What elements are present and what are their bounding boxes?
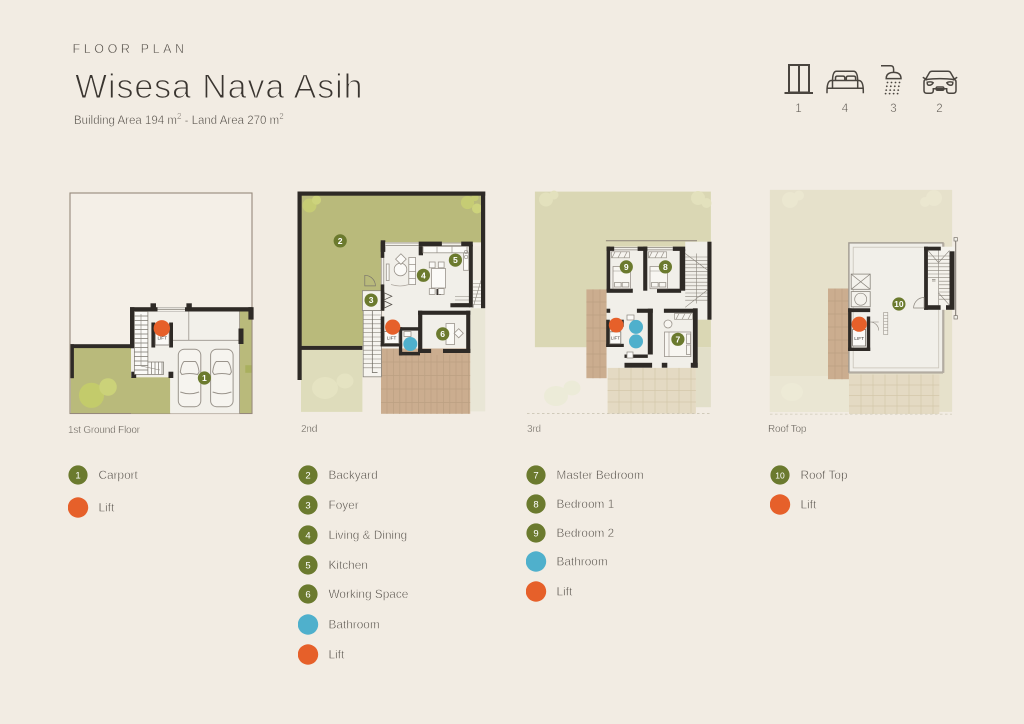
svg-text:5: 5 bbox=[453, 255, 458, 265]
svg-text:Bathroom: Bathroom bbox=[328, 617, 379, 631]
svg-text:Bedroom 2: Bedroom 2 bbox=[556, 526, 614, 540]
svg-text:4: 4 bbox=[842, 103, 849, 115]
svg-text:3: 3 bbox=[305, 500, 310, 511]
svg-text:4: 4 bbox=[305, 530, 310, 541]
svg-text:Kitchen: Kitchen bbox=[328, 558, 367, 572]
svg-text:4: 4 bbox=[421, 270, 426, 280]
svg-text:Living & Dining: Living & Dining bbox=[328, 528, 407, 542]
svg-text:LIFT: LIFT bbox=[611, 336, 620, 341]
svg-text:10: 10 bbox=[775, 470, 785, 480]
svg-text:6: 6 bbox=[440, 329, 445, 339]
svg-text:Foyer: Foyer bbox=[328, 498, 358, 512]
svg-text:Roof Top: Roof Top bbox=[800, 468, 847, 482]
svg-text:2: 2 bbox=[338, 236, 343, 246]
svg-text:LIFT: LIFT bbox=[387, 335, 397, 340]
svg-text:2: 2 bbox=[936, 103, 942, 115]
svg-text:5: 5 bbox=[305, 560, 310, 571]
svg-text:9: 9 bbox=[624, 262, 629, 272]
svg-text:9: 9 bbox=[533, 528, 538, 539]
svg-text:Bedroom 1: Bedroom 1 bbox=[556, 497, 614, 511]
svg-text:1: 1 bbox=[202, 373, 207, 383]
svg-text:Backyard: Backyard bbox=[328, 468, 377, 482]
svg-text:7: 7 bbox=[533, 470, 538, 481]
svg-text:8: 8 bbox=[533, 499, 538, 510]
svg-text:LIFT: LIFT bbox=[854, 336, 864, 342]
svg-text:3: 3 bbox=[369, 295, 374, 305]
svg-text:10: 10 bbox=[894, 299, 904, 309]
svg-text:Working Space: Working Space bbox=[328, 588, 408, 602]
svg-text:Lift: Lift bbox=[99, 500, 115, 514]
svg-text:Carport: Carport bbox=[99, 468, 139, 482]
svg-text:2: 2 bbox=[305, 470, 310, 481]
svg-text:7: 7 bbox=[676, 334, 681, 344]
svg-text:8: 8 bbox=[663, 262, 668, 272]
svg-text:Bathroom: Bathroom bbox=[556, 555, 607, 569]
svg-text:3: 3 bbox=[890, 103, 896, 115]
svg-text:1: 1 bbox=[75, 470, 80, 481]
svg-text:Lift: Lift bbox=[328, 647, 344, 661]
svg-text:1: 1 bbox=[795, 103, 801, 115]
svg-text:Master Bedroom: Master Bedroom bbox=[556, 468, 643, 482]
svg-text:6: 6 bbox=[305, 590, 310, 601]
svg-text:Lift: Lift bbox=[556, 585, 572, 599]
svg-text:Lift: Lift bbox=[800, 498, 816, 512]
